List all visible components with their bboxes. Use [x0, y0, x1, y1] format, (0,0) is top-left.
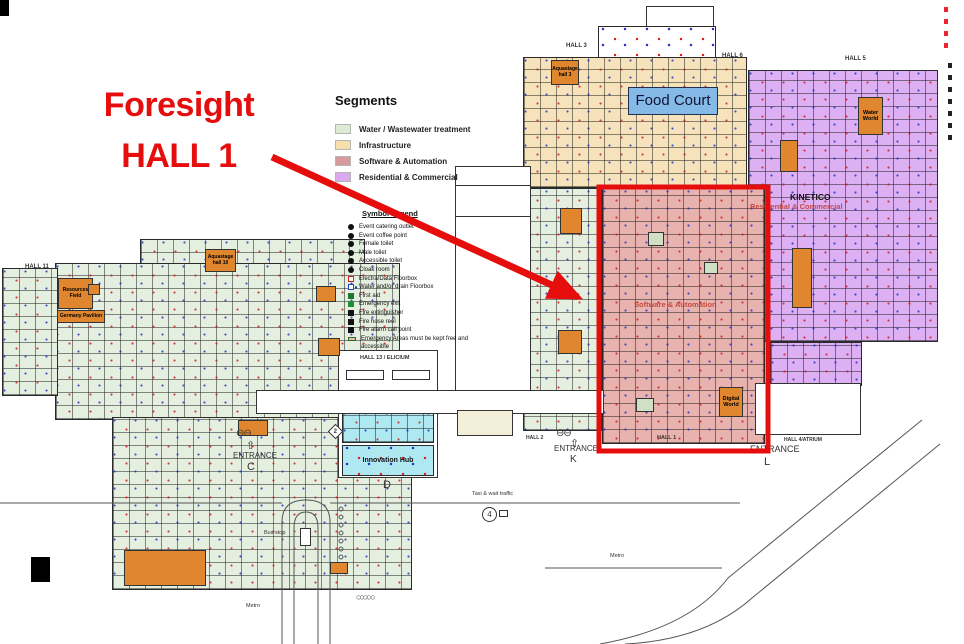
kinetico-stand-label: KINETICO [790, 192, 831, 202]
hall-4-atrium-area [755, 383, 861, 435]
symbol-legend-item: Water and/or drain Floorbox [348, 283, 483, 292]
event-coffee-point-icon [348, 233, 354, 239]
entrance-l-letter: L [764, 456, 770, 468]
entrance-c-letter: C [247, 461, 255, 473]
aquastage-hall3-stand: Aquastage hall 3 [551, 60, 579, 85]
segment-label: Software & Automation [359, 157, 447, 166]
tram-icon [499, 510, 508, 517]
fire-alarm-call-point-icon [348, 327, 354, 333]
entrance-k-word: ENTRANCE [554, 444, 598, 453]
orange-stand [330, 562, 348, 574]
electra-data-floorbox-icon [348, 276, 354, 282]
symbol-label: Accessible toilet [359, 257, 402, 265]
taxi-label: Taxi & wait traffic [472, 491, 513, 497]
fire-hose-reel-icon [348, 319, 354, 325]
entrance-c-word: ENTRANCE [233, 451, 277, 460]
metro-label-left: Metro [246, 603, 260, 609]
hall-4-label: HALL 4/ATRIUM [784, 437, 822, 443]
symbol-legend-item: Emergency exit [348, 300, 483, 309]
orange-stand [124, 550, 206, 586]
symbol-legend-items: Event catering outletEvent coffee pointF… [348, 223, 483, 351]
emergency-areas-must-be-kept-free-and-accessible-icon [348, 337, 356, 342]
symbol-label: Fire alarm call point [359, 326, 411, 334]
green-stand [636, 398, 654, 412]
orange-stand [792, 248, 812, 308]
symbol-label: Electra/Data Floorbox [359, 275, 417, 283]
symbol-legend-item: Electra/Data Floorbox [348, 275, 483, 284]
hall-11-label: HALL 11 [25, 264, 49, 270]
orange-stand [318, 338, 340, 356]
hall-5-label: HALL 5 [845, 56, 866, 62]
symbol-legend-item: Fire alarm call point [348, 326, 483, 335]
water-and-or-drain-floorbox-icon [348, 284, 354, 290]
innovation-hub-stands [342, 410, 434, 443]
map-edge-mark [0, 0, 9, 16]
orange-stand [558, 330, 582, 354]
symbol-legend-item: Female toilet [348, 240, 483, 249]
annotation-line1: Foresight [68, 80, 290, 131]
symbol-label: Male toilet [359, 249, 386, 257]
symbol-label: Female toilet [359, 240, 393, 248]
germany-pavilion-stand: Germany Pavilion [57, 310, 105, 323]
service-building [457, 410, 513, 436]
symbol-label: First aid [359, 292, 380, 300]
green-stand [648, 232, 664, 246]
segment-legend-item: Software & Automation [335, 153, 525, 169]
symbol-label: Water and/or drain Floorbox [359, 283, 433, 291]
segment-label: Infrastructure [359, 141, 411, 150]
emergency-exit-icon [348, 301, 354, 307]
edge-red-dashes [944, 0, 948, 48]
symbol-legend-item: Fire extinguisher [348, 309, 483, 318]
hall-11-west-wing [2, 268, 58, 396]
male-toilet-icon [348, 250, 354, 256]
first-aid-icon [348, 293, 354, 299]
annotation-line2: HALL 1 [68, 131, 290, 182]
symbol-label: Event coffee point [359, 232, 407, 240]
segment-label: Water / Wastewater treatment [359, 125, 470, 134]
innovation-hub-label: Innovation Hub [363, 457, 414, 464]
symbol-label: Cloak room [359, 266, 390, 274]
software-automation-overlay: Software & Automation [634, 300, 717, 309]
symbol-legend: Symbol Legend Event catering outletEvent… [348, 209, 483, 351]
bus-stop-label: Bus stop [264, 530, 285, 536]
residential-commercial-overlay: Residential & Commercial [750, 202, 843, 211]
aquastage-hall10-stand: Aquastage hall 10 [205, 249, 236, 272]
venue-floor-plan: HALL 6 HALL 3 Aquastage hall 3 Food Cour… [0, 0, 964, 644]
edge-black-dashes [948, 58, 952, 140]
digital-world-stand: Digital World [719, 387, 743, 417]
map-edge-mark [31, 557, 50, 582]
symbol-label: Fire hose reel [359, 318, 396, 326]
segment-color-swatch [335, 156, 351, 166]
food-court: Food Court [628, 87, 718, 115]
segment-color-swatch [335, 124, 351, 134]
hall-1-label: HALL 1 [657, 435, 676, 441]
innovation-hub-area: Innovation Hub [342, 445, 434, 476]
symbol-label: Fire extinguisher [359, 309, 403, 317]
segment-legend-item: Infrastructure [335, 137, 525, 153]
entrance-k-gates-icon [556, 423, 571, 441]
orange-stand [316, 286, 336, 302]
segment-color-swatch [335, 140, 351, 150]
segments-legend-title: Segments [335, 93, 525, 108]
hall-13-label: HALL 13 / ELICIUM [360, 355, 409, 361]
fire-extinguisher-icon [348, 310, 354, 316]
entrance-l-word: ENTRANCE [750, 444, 800, 454]
accessible-toilet-icon [348, 258, 354, 264]
symbol-legend-item: Male toilet [348, 249, 483, 258]
orange-stand [780, 140, 798, 172]
entrance-d-letter: D [383, 479, 391, 491]
symbol-legend-title: Symbol Legend [362, 209, 483, 218]
annotation-callout: Foresight HALL 1 [68, 80, 290, 182]
symbol-legend-item: Event catering outlet [348, 223, 483, 232]
green-stand [704, 262, 718, 274]
hall-13-stage [392, 370, 430, 380]
water-world-stand: Water World [858, 97, 883, 135]
symbol-label: Emergency exit [359, 300, 400, 308]
hall-3-label: HALL 3 [566, 43, 587, 49]
symbol-legend-item: Event coffee point [348, 232, 483, 241]
bus-bay-icon [300, 528, 311, 546]
hall-5-lower-area [770, 342, 862, 386]
entrance-k-letter: K [570, 454, 577, 465]
segments-legend-items: Water / Wastewater treatmentInfrastructu… [335, 121, 525, 185]
orange-stand [560, 208, 582, 234]
parking-dots [337, 505, 345, 561]
cloak-room-icon [348, 267, 354, 273]
female-toilet-icon [348, 241, 354, 247]
segment-label: Residential & Commercial [359, 173, 458, 182]
symbol-legend-item: Emergency Areas must be kept free and ac… [348, 335, 483, 351]
route-4-marker: 4 [482, 507, 497, 522]
metro-label-right: Metro [610, 553, 624, 559]
hall-13-stage [346, 370, 384, 380]
segment-legend-item: Water / Wastewater treatment [335, 121, 525, 137]
passage-corridor [256, 390, 604, 414]
symbol-legend-item: Fire hose reel [348, 318, 483, 327]
symbol-label: Event catering outlet [359, 223, 414, 231]
symbol-legend-item: Accessible toilet [348, 257, 483, 266]
segment-legend-item: Residential & Commercial [335, 169, 525, 185]
hall-6-label: HALL 6 [722, 53, 743, 59]
orange-stand [88, 284, 100, 295]
segments-legend: Segments Water / Wastewater treatmentInf… [335, 93, 525, 185]
symbol-legend-item: First aid [348, 292, 483, 301]
symbol-legend-item: Cloak room [348, 266, 483, 275]
hall-2-label: HALL 2 [526, 435, 543, 441]
segment-color-swatch [335, 172, 351, 182]
symbol-label: Emergency Areas must be kept free and ac… [361, 335, 483, 351]
event-catering-outlet-icon [348, 224, 354, 230]
bus-circles-icon: ○○○○ ○ [356, 592, 374, 602]
